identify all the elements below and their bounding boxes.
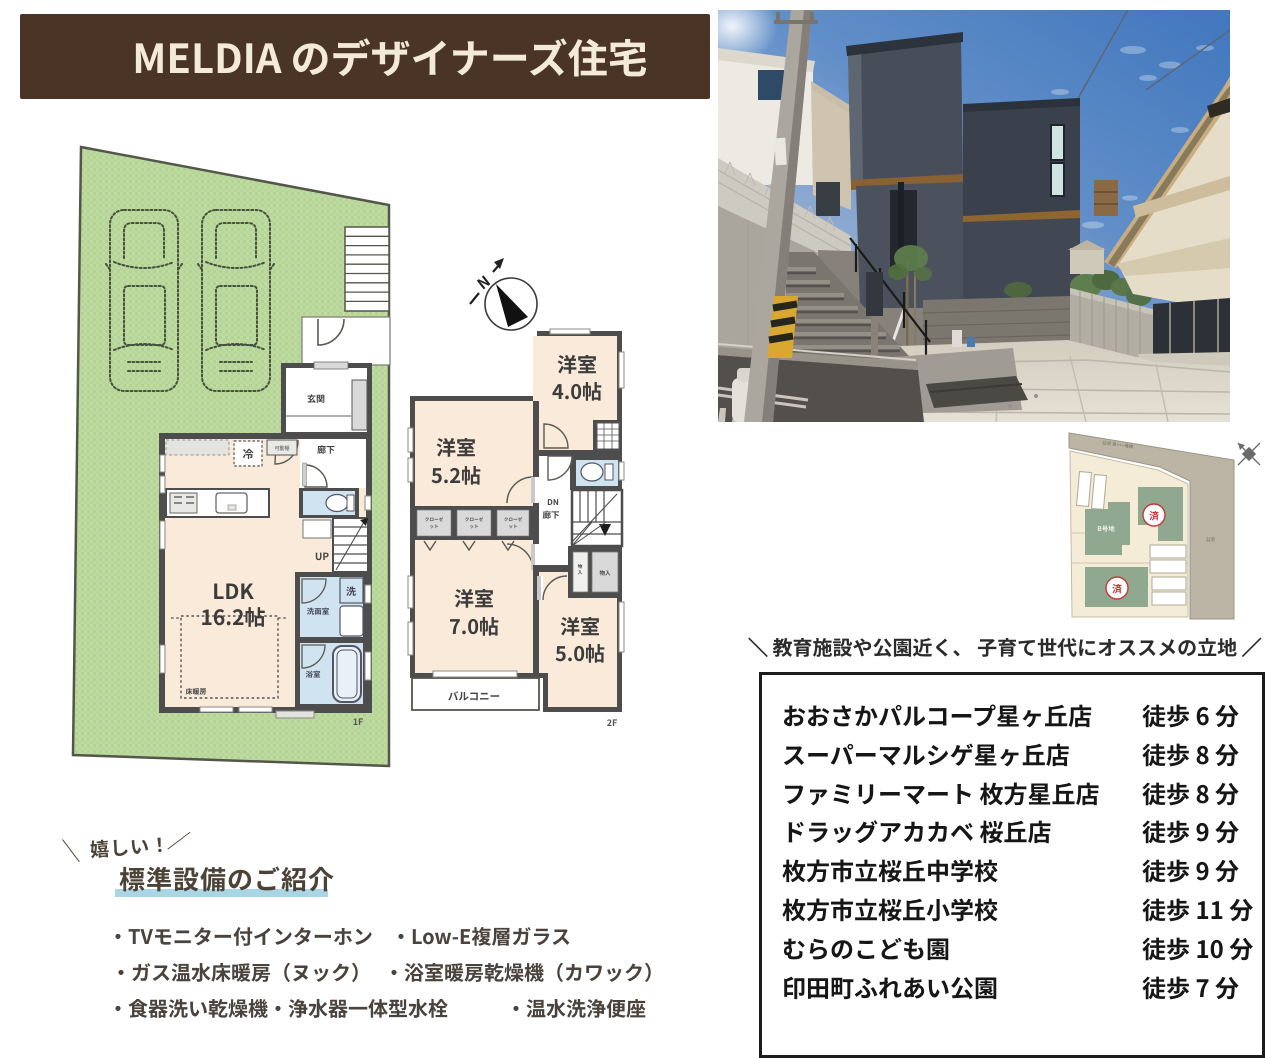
svg-text:物入: 物入 (599, 569, 611, 577)
svg-text:クローゼ: クローゼ (425, 517, 444, 523)
svg-text:クローゼ: クローゼ (504, 517, 523, 523)
svg-text:洗: 洗 (346, 583, 356, 598)
svg-text:洗面室: 洗面室 (307, 606, 330, 617)
svg-text:冷: 冷 (243, 446, 254, 462)
svg-text:済: 済 (1112, 581, 1122, 596)
svg-text:洋室: 洋室 (454, 583, 494, 612)
svg-text:廊下: 廊下 (317, 443, 335, 456)
svg-text:16.2帖: 16.2帖 (201, 602, 266, 632)
svg-text:ット: ット (508, 524, 517, 530)
svg-text:DN: DN (547, 497, 559, 508)
svg-text:公道: 公道 (1206, 536, 1215, 543)
svg-text:済: 済 (1149, 508, 1159, 523)
svg-text:洋室: 洋室 (436, 432, 476, 461)
svg-text:可動棚: 可動棚 (274, 445, 289, 452)
svg-text:1F: 1F (353, 715, 364, 728)
svg-text:4.0帖: 4.0帖 (552, 376, 602, 405)
svg-text:5.0帖: 5.0帖 (555, 638, 605, 667)
svg-text:クローゼ: クローゼ (465, 517, 484, 523)
svg-text:洋室: 洋室 (557, 349, 597, 378)
svg-text:床暖房: 床暖房 (186, 687, 207, 697)
svg-text:浴室: 浴室 (306, 669, 321, 680)
svg-text:バルコニー: バルコニー (448, 689, 500, 704)
svg-text:玄関: 玄関 (307, 392, 325, 405)
svg-text:5.2帖: 5.2帖 (431, 460, 481, 489)
svg-text:廊下: 廊下 (542, 509, 560, 521)
svg-text:7.0帖: 7.0帖 (449, 611, 499, 640)
svg-text:ット: ット (469, 524, 478, 530)
svg-text:B号地: B号地 (1097, 523, 1115, 533)
svg-text:ット: ット (429, 524, 438, 530)
svg-text:2F: 2F (607, 716, 618, 729)
svg-text:入: 入 (578, 570, 583, 576)
svg-text:UP: UP (315, 548, 329, 563)
svg-text:洋室: 洋室 (560, 611, 600, 640)
